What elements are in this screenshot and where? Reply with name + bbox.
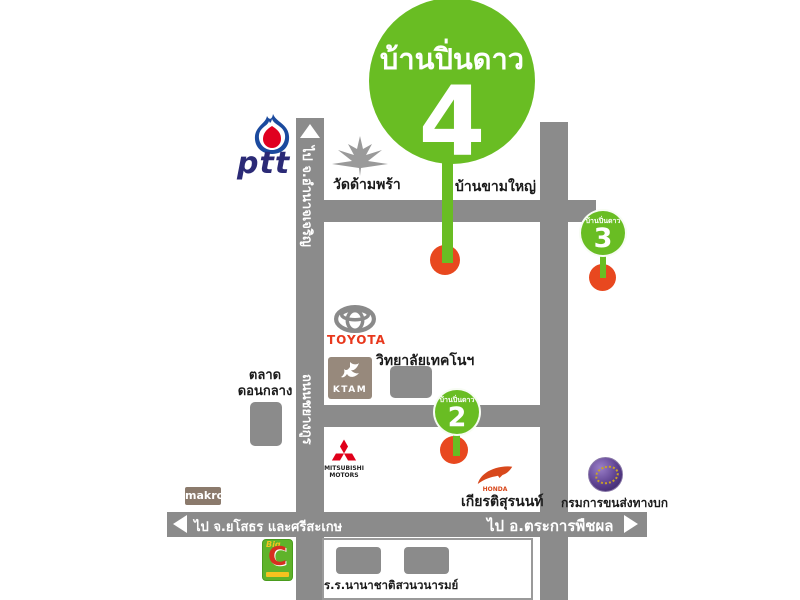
- market-label-line1: ตลาด: [233, 368, 297, 384]
- school-park-block: ร.ร.นานาชาติ สวนวนารมย์: [322, 538, 533, 600]
- bigc-c-text: C: [263, 542, 292, 572]
- mitsubishi-icon: [330, 437, 358, 463]
- market-label-line2: ดอนกลาง: [233, 384, 297, 400]
- pin2-badge: บ้านปิ่นดาว 2: [433, 388, 481, 436]
- pin3-number: 3: [581, 227, 625, 251]
- village-label: บ้านขามใหญ่: [455, 176, 536, 198]
- honda-wing-icon: [477, 464, 513, 486]
- ktam-building: KTAM: [328, 357, 372, 399]
- pin2-number: 2: [435, 406, 479, 430]
- college-building: [390, 366, 432, 398]
- school-label: ร.ร.นานาชาติ: [324, 577, 392, 595]
- ptt-logo-text: ptt: [237, 146, 290, 181]
- toyota-emblem-icon: [333, 305, 377, 333]
- mitsubishi-logo-text: MITSUBISHI MOTORS: [320, 465, 368, 479]
- road-name-label: ถนนชยางกูร: [297, 374, 318, 445]
- dlt-label: กรมการขนส่งทางบก: [561, 494, 668, 513]
- north-arrow-icon: [300, 124, 320, 138]
- dlt-emblem-icon: [588, 457, 623, 492]
- park-building: [404, 547, 449, 574]
- makro-store: makro: [185, 487, 221, 505]
- north-direction-label: ไป จ.อำนาจเจริญ: [297, 146, 318, 247]
- east-direction-label: ไป อ.ตระการพืชผล: [487, 514, 613, 538]
- bigc-banner-bar: [266, 572, 289, 577]
- pin4-badge: บ้านปิ่นดาว 4: [369, 0, 535, 164]
- honda-dealer-label: เกียรติสุรนนท์: [461, 491, 544, 513]
- west-direction-label: ไป จ.ยโสธร และศรีสะเกษ: [194, 516, 342, 537]
- west-arrow-icon: [173, 515, 187, 533]
- pin4-number: 4: [369, 78, 535, 166]
- toyota-logo-text: TOYOTA: [327, 333, 386, 347]
- ktam-eagle-icon: [339, 361, 361, 381]
- ktam-logo-text: KTAM: [328, 385, 372, 395]
- mitsubishi-text-line1: MITSUBISHI: [320, 465, 368, 472]
- market-label: ตลาด ดอนกลาง: [233, 368, 297, 399]
- park-label: สวนวนารมย์: [394, 577, 460, 595]
- mitsubishi-text-line2: MOTORS: [320, 472, 368, 479]
- school-building: [336, 547, 381, 574]
- temple-label: วัดด้ามพร้า: [333, 174, 401, 196]
- location-map: ไป จ.อำนาจเจริญ ถนนชยางกูร ไป จ.ยโสธร แล…: [0, 0, 800, 600]
- middle-horizontal-road: [296, 405, 568, 427]
- east-arrow-icon: [624, 515, 638, 533]
- pin3-badge: บ้านปิ่นดาว 3: [579, 209, 627, 257]
- bigc-store: Big C: [262, 539, 293, 581]
- market-building: [250, 402, 282, 446]
